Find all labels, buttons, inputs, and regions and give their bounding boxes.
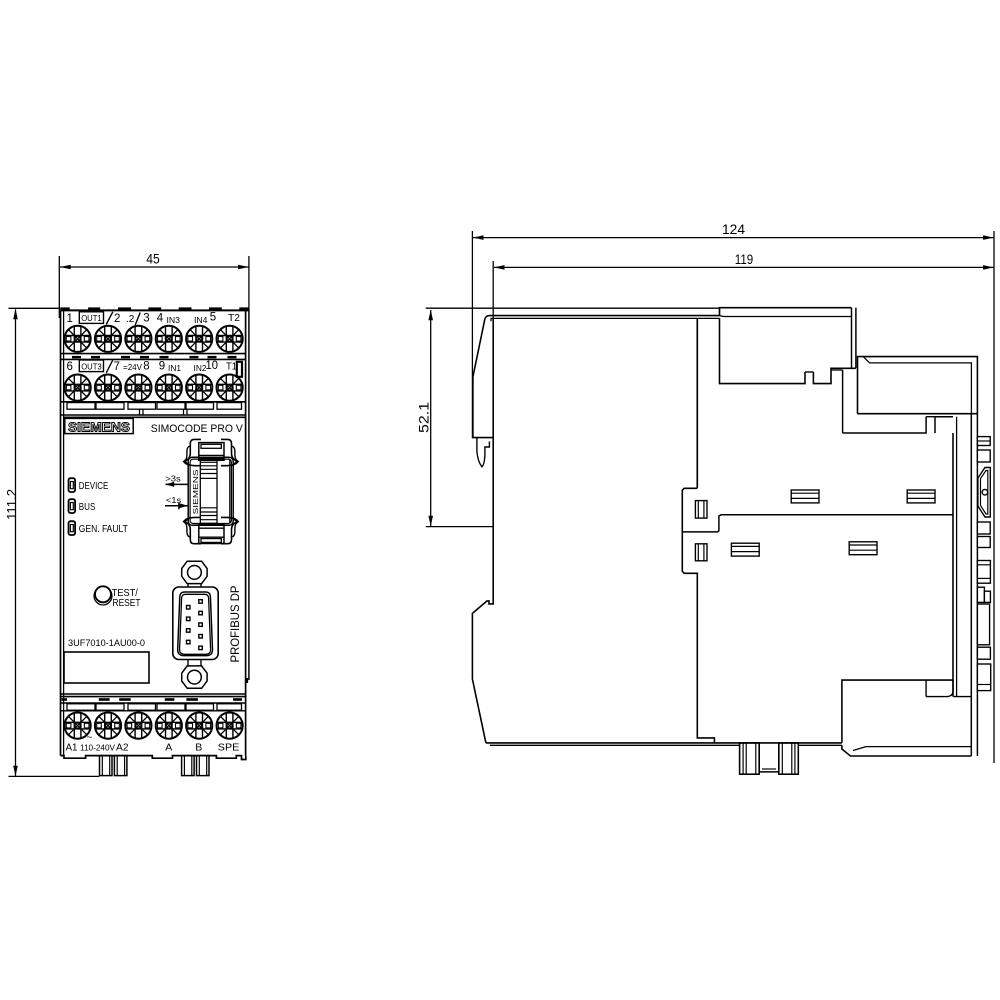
svg-text:PROFIBUS DP: PROFIBUS DP	[230, 585, 242, 662]
svg-text:SIMOCODE PRO V: SIMOCODE PRO V	[151, 423, 244, 435]
svg-text:A2: A2	[116, 741, 129, 753]
svg-text:~: ~	[87, 733, 93, 744]
svg-text:110-240V: 110-240V	[80, 743, 116, 752]
svg-text:124: 124	[722, 222, 745, 237]
svg-text:8: 8	[143, 361, 149, 373]
svg-text:OUT3: OUT3	[81, 362, 102, 371]
svg-text:45: 45	[146, 252, 160, 267]
svg-text:7: 7	[114, 361, 120, 373]
svg-text:A: A	[165, 741, 172, 753]
svg-text:BUS: BUS	[79, 501, 96, 513]
svg-text:B: B	[195, 741, 202, 753]
svg-text:SIEMENS: SIEMENS	[68, 419, 130, 434]
svg-text:SIEMENS: SIEMENS	[191, 469, 200, 514]
svg-text:1: 1	[67, 313, 73, 325]
svg-text:IN1: IN1	[168, 364, 182, 373]
svg-text:9: 9	[159, 360, 165, 372]
svg-text:T1: T1	[226, 361, 237, 373]
svg-text:GEN. FAULT: GEN. FAULT	[79, 523, 128, 535]
svg-text:DEVICE: DEVICE	[79, 480, 109, 492]
svg-text:T2: T2	[228, 312, 240, 324]
svg-text:IN3: IN3	[167, 316, 181, 325]
svg-text:SPE: SPE	[218, 741, 240, 753]
svg-text:=24V: =24V	[123, 362, 142, 372]
svg-text:RESET: RESET	[113, 597, 141, 609]
svg-text:>3s: >3s	[165, 474, 181, 484]
svg-text:111.2: 111.2	[4, 489, 19, 520]
svg-text:52.1: 52.1	[417, 402, 432, 433]
svg-text:10: 10	[206, 360, 219, 372]
svg-text:A1: A1	[66, 741, 78, 753]
svg-text:6: 6	[67, 361, 73, 373]
svg-text:5: 5	[210, 312, 216, 324]
svg-text:119: 119	[735, 252, 754, 267]
svg-text:4: 4	[157, 313, 164, 325]
svg-text:.2: .2	[126, 314, 135, 325]
svg-text:OUT1: OUT1	[81, 314, 102, 323]
svg-text:3UF7010-1AU00-0: 3UF7010-1AU00-0	[68, 638, 145, 649]
svg-text:2: 2	[114, 313, 120, 325]
svg-text:IN4: IN4	[194, 316, 208, 325]
svg-text:3: 3	[143, 313, 149, 325]
